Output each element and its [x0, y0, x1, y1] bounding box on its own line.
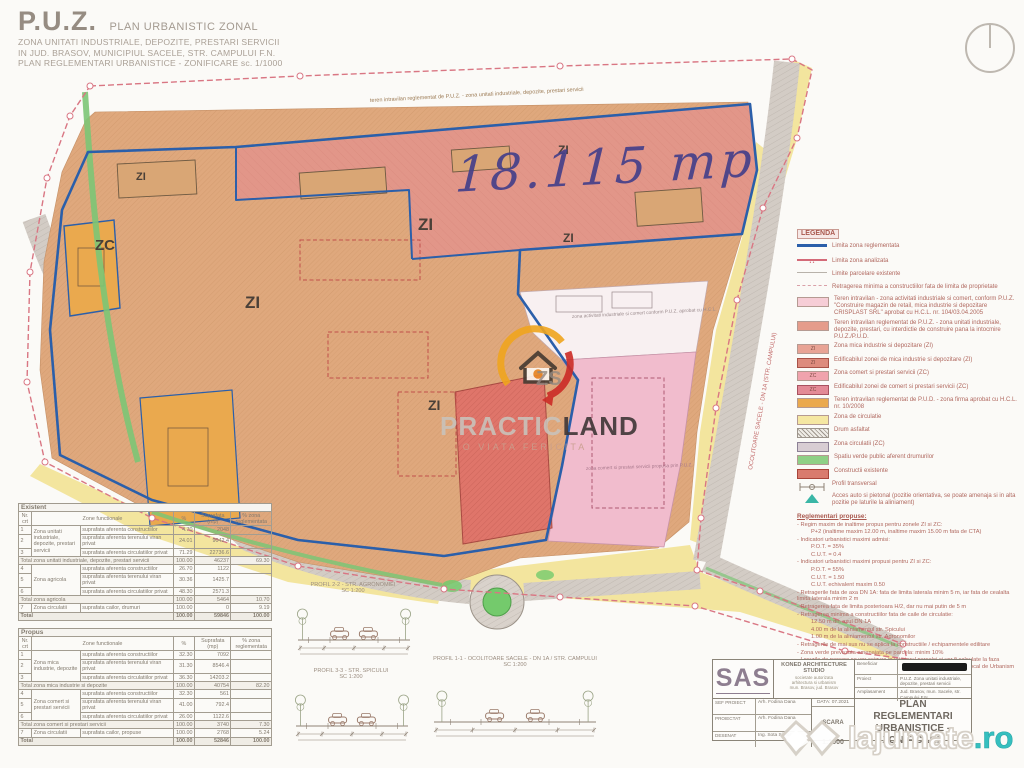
legend-item-label: Spatiu verde public aferent drumurilor — [834, 454, 934, 461]
table-row: 4Zona agricolasuprafata aferenta constru… — [19, 565, 272, 573]
practicland-logo-icon — [492, 322, 588, 410]
boundary-vertex — [698, 515, 704, 521]
table-cell: suprafata aferenta terenului viran priva… — [80, 534, 173, 548]
table-cell: 24.01 — [173, 534, 194, 548]
legend-swatch-swatch: ZC — [797, 371, 829, 381]
legend-item-label: Retragerea minima a constructiilor fata … — [832, 284, 998, 291]
table-cell: 32.30 — [173, 651, 194, 659]
practicland-mark: ZS — [536, 368, 562, 391]
role-label: DESENAT — [713, 732, 756, 747]
table-cell: 2768 — [195, 729, 231, 737]
table-cell — [231, 651, 272, 659]
table-cell: suprafata aferenta terenului viran priva… — [80, 659, 173, 673]
table-cell: 59846 — [195, 612, 231, 620]
legend-swatch-swatch: ZI — [797, 344, 829, 354]
legend-swatch-line-dash — [797, 285, 827, 294]
role-row: SEF PROIECTArh. Fodina Dana — [713, 699, 811, 715]
table-cell: % — [173, 512, 194, 526]
regulation-note: C.U.T. = 1.50 — [797, 575, 1019, 582]
regulation-note: P.O.T. = 55% — [797, 567, 1019, 574]
table-row: Total zona mica industrie si depozite100… — [19, 682, 272, 690]
table-cell — [231, 565, 272, 573]
north-symbol-icon — [962, 18, 1018, 74]
firm-info: KONED ARCHITECTURE STUDIO societate auto… — [774, 660, 855, 698]
legend-item-label: Limite parcelare existente — [832, 271, 900, 278]
table-row: Total zona unitati industriale, depozite… — [19, 557, 272, 565]
legend-item: Profil transversal — [797, 481, 1019, 490]
table-cell: Zone functionale — [32, 512, 174, 526]
table-cell: Zone functionale — [32, 637, 174, 651]
table-cell: Nr. crt — [19, 512, 32, 526]
table-cell: Total zona agricola — [19, 596, 174, 604]
table-cell: suprafata aferenta terenului viran priva… — [80, 573, 173, 587]
table-cell: % — [173, 637, 194, 651]
boundary-vertex — [734, 297, 740, 303]
table-cell: 14203.2 — [195, 674, 231, 682]
legend-title: LEGENDA — [797, 229, 839, 239]
legend-item-label: Zona mica industrie si depozitare (ZI) — [834, 343, 933, 350]
regulation-note: - Indicatori urbanistici maximi propusi … — [797, 559, 1019, 566]
table-cell: 40754 — [195, 682, 231, 690]
zone-label: ZI — [245, 293, 260, 312]
table-row: 4Zona comert si prestari serviciisuprafa… — [19, 690, 272, 698]
legend: LEGENDA Limita zona reglementata• •Limit… — [797, 222, 1019, 678]
table-cell: suprafata aferenta terenului viran priva… — [80, 698, 173, 712]
table-cell: 8546.4 — [195, 659, 231, 673]
regulation-note: 12.50 m din axul DN 1A — [797, 619, 1019, 626]
boundary-vertex — [87, 83, 93, 89]
table-cell: 100.00 — [173, 737, 194, 745]
legend-item: ZCZona comert si prestari servicii (ZC) — [797, 370, 1019, 381]
role-name: Arh. Fodina Dana — [756, 699, 811, 714]
table-cell: 7.30 — [231, 721, 272, 729]
legend-swatch-swatch — [797, 469, 829, 479]
regulation-note: P.O.T. = 35% — [797, 544, 1019, 551]
table-cell: Zona agricola — [32, 565, 81, 596]
legend-swatch-line — [797, 272, 827, 281]
sheet-title: P.U.Z. PLAN URBANISTIC ZONAL ZONA UNITAT… — [18, 6, 378, 69]
regulation-note: - Indicatori urbanistici maximi admisi: — [797, 537, 1019, 544]
regulation-note: 4.00 m de la aliniamentul str. Spicului — [797, 627, 1019, 634]
table-cell: 4 — [19, 565, 32, 573]
regulation-note: - Retragerile fata de axa DN 1A: fata de… — [797, 590, 1019, 603]
zone-label: ZI — [428, 397, 440, 413]
table-cell: 3 — [19, 549, 32, 557]
legend-item: ZCEdificabilul zonei de comert si presta… — [797, 384, 1019, 395]
table-row: 1Zona unitati industriale, depozite, pre… — [19, 526, 272, 534]
table-cell: % zona reglementata — [231, 512, 272, 526]
legend-item: Constructii existente — [797, 468, 1019, 479]
lajumate-watermark: lajumate.ro — [778, 716, 1022, 760]
profile-2-label: PROFIL 2-2 - STR. AGRONOMIEI — [311, 582, 396, 588]
table-cell: 30.36 — [173, 573, 194, 587]
legend-swatch-swatch — [797, 455, 829, 465]
legend-swatch-swatch — [797, 415, 829, 425]
table-cell: suprafata aferenta circulatiilor privat — [80, 549, 173, 557]
legend-item: Teren intravilan reglementat de P.U.Z. -… — [797, 320, 1019, 341]
boundary-vertex — [441, 586, 447, 592]
boundary-vertex — [295, 563, 301, 569]
table-cell: 5464 — [195, 596, 231, 604]
practicland-tagline: O VIATA FERICITA — [440, 442, 610, 452]
table-cell: Zona comert si prestari servicii — [32, 690, 81, 721]
legend-item: Spatiu verde public aferent drumurilor — [797, 454, 1019, 465]
title-type: PLAN URBANISTIC ZONAL — [109, 21, 258, 33]
boundary-vertex — [557, 594, 563, 600]
table-cell: 36.30 — [173, 674, 194, 682]
firm-logo: SAS — [713, 660, 774, 698]
table-cell: 1 — [19, 651, 32, 659]
legend-item: Zona circulatii (ZC) — [797, 441, 1019, 452]
boundary-vertex — [789, 56, 795, 62]
role-label: SEF PROIECT — [713, 699, 756, 714]
legend-item-label: Constructii existente — [834, 468, 888, 475]
table-cell: 2 — [19, 534, 32, 548]
table-cell: 41.00 — [173, 698, 194, 712]
legend-swatch-swatch: ZC — [797, 385, 829, 395]
regulation-note: - Zona verde prevazuta amenajata pe parc… — [797, 650, 1019, 657]
boundary-vertex — [27, 269, 33, 275]
boundary-vertex — [44, 175, 50, 181]
table-cell: 5 — [19, 573, 32, 587]
legend-items: Limita zona reglementata• •Limita zona a… — [797, 243, 1019, 507]
profile-1-drawing — [430, 678, 600, 740]
table-cell: 6 — [19, 713, 32, 721]
table-cell — [231, 534, 272, 548]
legend-swatch-swatch — [797, 398, 829, 408]
table-cell: suprafata aferenta constructiilor — [80, 526, 173, 534]
table-cell: 2571.3 — [195, 588, 231, 596]
boundary-vertex — [694, 567, 700, 573]
legend-item-label: Zona de circulatie — [834, 414, 881, 421]
legend-swatch-line-marked: • • — [797, 259, 827, 269]
table-cell: 4 — [19, 690, 32, 698]
table-cell: Total — [19, 737, 174, 745]
table-cell: 5 — [19, 698, 32, 712]
legend-swatch-swatch — [797, 297, 829, 307]
regulation-note: C.U.T. = 0.4 — [797, 552, 1019, 559]
legend-swatch-hatch — [797, 428, 829, 438]
profile-3-scale: SC 1:200 — [339, 674, 362, 680]
table-cell: 9042.4 — [195, 534, 231, 548]
legend-item: Drum asfaltat — [797, 427, 1019, 438]
table-cell — [231, 526, 272, 534]
role-label: PROIECTAT — [713, 715, 756, 730]
table-row: Total100.0052846100.00 — [19, 737, 272, 745]
table-cell: 561 — [195, 690, 231, 698]
table-cell: 71.29 — [173, 549, 194, 557]
legend-swatch-line — [797, 244, 827, 255]
regulation-note: P+2 (inaltime maxim 12.00 m, inaltime ma… — [797, 529, 1019, 536]
boundary-vertex — [42, 459, 48, 465]
table-title: Existent — [18, 503, 272, 511]
legend-item-label: Teren intravilan - zona activitati indus… — [834, 296, 1019, 317]
title-line-2: IN JUD. BRASOV, MUNICIPIUL SACELE, STR. … — [18, 48, 378, 59]
table-cell — [231, 588, 272, 596]
table-cell — [231, 659, 272, 673]
date-label: DATA: 07.2021 — [812, 700, 854, 707]
table-cell: suprafata cailor, drumuri — [80, 604, 173, 612]
project-row: Proiect P.U.Z. Zona unitati industriale,… — [855, 675, 971, 688]
title-line-3: PLAN REGLEMENTARI URBANISTICE - ZONIFICA… — [18, 58, 378, 69]
table-cell: Total zona mica industrie si depozite — [19, 682, 174, 690]
boundary-vertex — [297, 73, 303, 79]
table-cell: 100.00 — [173, 557, 194, 565]
practicland-watermark: ZS PRACTICLAND O VIATA FERICITA — [440, 322, 610, 452]
table-cell: 0 — [195, 604, 231, 612]
regulation-note: - Retragerile de mai sus nu se aplica la… — [797, 642, 1019, 649]
svg-text:teren intravilan reglementat d: teren intravilan reglementat de P.U.Z. -… — [370, 87, 584, 104]
table-cell: suprafata cailor, propuse — [80, 729, 173, 737]
boundary-vertex — [557, 63, 563, 69]
table-title: Propus — [18, 628, 272, 636]
boundary-vertex — [24, 379, 30, 385]
table-cell: 32.30 — [173, 690, 194, 698]
table-row: Total zona comert si prestari servicii10… — [19, 721, 272, 729]
land-balance-table: Nr. crtZone functionale%Suprafata (mp)% … — [18, 636, 272, 746]
profile-2-drawing — [294, 598, 414, 658]
legend-item-label: Limita zona analizata — [832, 258, 888, 265]
table-cell: 5.24 — [231, 729, 272, 737]
legend-item: Limite parcelare existente — [797, 271, 1019, 281]
boundary-vertex — [692, 603, 698, 609]
table-cell: suprafata aferenta constructiilor — [80, 690, 173, 698]
table-cell: 10.70 — [231, 596, 272, 604]
practicland-brand: PRACTICLAND — [440, 411, 610, 442]
legend-item: • •Limita zona analizata — [797, 258, 1019, 269]
table-cell: 1122.6 — [195, 713, 231, 721]
table-cell: 100.00 — [173, 604, 194, 612]
table-cell: Suprafata (mp) — [195, 637, 231, 651]
legend-item-label: Teren intravilan reglementat de P.U.D. -… — [834, 397, 1019, 411]
table-cell: 2048 — [195, 526, 231, 534]
legend-item-label: Limita zona reglementata — [832, 243, 899, 250]
zone-label: ZI — [563, 231, 574, 245]
table-cell: Zona circulatii — [32, 604, 81, 612]
legend-swatch-swatch — [797, 321, 829, 331]
table-cell: 100.00 — [231, 612, 272, 620]
legend-swatch-swatch — [797, 442, 829, 452]
table-cell: Zona circulatii — [32, 729, 81, 737]
beneficiary-row: Beneficiar — [855, 660, 971, 675]
table-cell: suprafata aferenta constructiilor — [80, 651, 173, 659]
legend-item: Limita zona reglementata — [797, 243, 1019, 255]
table-cell: 52846 — [195, 737, 231, 745]
plan-sheet: teren intravilan reglementat de P.U.Z. -… — [0, 0, 1024, 768]
table-cell: 100.00 — [231, 737, 272, 745]
legend-item: Acces auto si pietonal (pozitie orientat… — [797, 493, 1019, 507]
table-cell: 9.19 — [231, 604, 272, 612]
table-cell: 100.00 — [173, 721, 194, 729]
redacted-beneficiary — [902, 663, 967, 671]
table-cell: Suprafata (mp) — [195, 512, 231, 526]
legend-swatch-access — [797, 494, 827, 502]
table-row: 7Zona circulatiisuprafata cailor, propus… — [19, 729, 272, 737]
table-row: Total100.0059846100.00 — [19, 612, 272, 620]
table-propus: PropusNr. crtZone functionale%Suprafata … — [18, 628, 272, 746]
profile-1-scale: SC 1:200 — [503, 662, 526, 668]
lajumate-wordmark: lajumate.ro — [848, 720, 1013, 756]
table-cell: 1 — [19, 526, 32, 534]
table-cell: 1425.7 — [195, 573, 231, 587]
firm-sub-3: mun. Brasov, jud. Brasov — [774, 685, 854, 690]
table-cell: 100.00 — [173, 612, 194, 620]
table-cell: 6 — [19, 588, 32, 596]
table-cell: suprafata aferenta circulatiilor privat — [80, 713, 173, 721]
table-cell — [231, 690, 272, 698]
title-line-1: ZONA UNITATI INDUSTRIALE, DEPOZITE, PRES… — [18, 37, 378, 48]
land-balance-table: Nr. crtZone functionale%Suprafata (mp)% … — [18, 511, 272, 621]
legend-item-label: Acces auto si pietonal (pozitie orientat… — [832, 493, 1019, 507]
legend-item-label: Zona circulatii (ZC) — [834, 441, 885, 448]
table-cell: 7092 — [195, 651, 231, 659]
table-cell — [231, 573, 272, 587]
legend-swatch-swatch: ZI — [797, 358, 829, 368]
table-cell: Total — [19, 612, 174, 620]
legend-item-label: Edificabilul zonei de mica industrie si … — [834, 357, 972, 364]
table-cell: 82.20 — [231, 682, 272, 690]
legend-swatch-profile — [797, 482, 827, 490]
legend-item: Teren intravilan - zona activitati indus… — [797, 296, 1019, 317]
table-cell: 31.30 — [173, 659, 194, 673]
profile-3-drawing — [292, 684, 412, 744]
notes-title: Reglementari propuse: — [797, 513, 1019, 520]
table-cell: 4.70 — [173, 526, 194, 534]
boundary-vertex — [67, 113, 73, 119]
profile-3-label: PROFIL 3-3 - STR. SPICULUI — [314, 668, 389, 674]
table-row: 1Zona mica industrie, depozitesuprafata … — [19, 651, 272, 659]
table-row: Total zona agricola100.00546410.70 — [19, 596, 272, 604]
boundary-vertex — [713, 405, 719, 411]
table-cell: Nr. crt — [19, 637, 32, 651]
title-main: P.U.Z. — [18, 6, 97, 36]
table-cell: 1122 — [195, 565, 231, 573]
table-cell: 2 — [19, 659, 32, 673]
table-cell: Total zona unitati industriale, depozite… — [19, 557, 174, 565]
table-row: 7Zona circulatiisuprafata cailor, drumur… — [19, 604, 272, 612]
profile-1-label: PROFIL 1-1 - OCOLITOARE SACELE - DN 1A /… — [433, 656, 597, 662]
zone-label: ZI — [136, 171, 146, 183]
table-cell — [231, 698, 272, 712]
boundary-vertex — [757, 588, 763, 594]
table-cell: 3 — [19, 674, 32, 682]
table-cell: 46237 — [195, 557, 231, 565]
table-cell: 100.00 — [173, 682, 194, 690]
zone-label: ZC — [95, 237, 115, 254]
regulation-note: - Retragerea minima a constructiilor fat… — [797, 612, 1019, 619]
boundary-vertex — [760, 205, 766, 211]
legend-item: Zona de circulatie — [797, 414, 1019, 425]
table-cell: suprafata aferenta circulatiilor privat — [80, 674, 173, 682]
table-cell: 7 — [19, 729, 32, 737]
table-cell: Zona unitati industriale, depozite, pres… — [32, 526, 81, 557]
table-cell — [231, 549, 272, 557]
table-cell — [231, 713, 272, 721]
legend-item-label: Profil transversal — [832, 481, 877, 488]
legend-item-label: Drum asfaltat — [834, 427, 870, 434]
legend-item-label: Edificabilul zonei de comert si prestari… — [834, 384, 968, 391]
table-cell: Total zona comert si prestari servicii — [19, 721, 174, 729]
legend-notes: Reglementari propuse: - Regim maxim de i… — [797, 513, 1019, 677]
table-cell: % zona reglementata — [231, 637, 272, 651]
profile-2-scale: SC 1:200 — [341, 588, 364, 594]
zone-label: ZI — [418, 215, 433, 234]
table-cell: 100.00 — [173, 596, 194, 604]
legend-item: Retragerea minima a constructiilor fata … — [797, 284, 1019, 294]
legend-item-label: Teren intravilan reglementat de P.U.Z. -… — [834, 320, 1019, 341]
table-cell: suprafata aferenta circulatiilor privat — [80, 588, 173, 596]
table-cell: 3740 — [195, 721, 231, 729]
regulation-note: 1.00 m de la aliniamentul str. Agronomil… — [797, 634, 1019, 641]
regulation-note: C.U.T. echivalent maxim 0.50 — [797, 582, 1019, 589]
firm-name: KONED ARCHITECTURE STUDIO — [774, 662, 854, 675]
legend-item-label: Zona comert si prestari servicii (ZC) — [834, 370, 929, 377]
table-cell: 69.30 — [231, 557, 272, 565]
notes-list: - Regim maxim de inaltime propus pentru … — [797, 522, 1019, 677]
table-cell: 792.4 — [195, 698, 231, 712]
legend-item: Teren intravilan reglementat de P.U.D. -… — [797, 397, 1019, 411]
regulation-note: - Regim maxim de inaltime propus pentru … — [797, 522, 1019, 529]
table-cell: suprafata aferenta constructiilor — [80, 565, 173, 573]
table-cell: 22736.6 — [195, 549, 231, 557]
table-cell — [231, 674, 272, 682]
table-cell: 7 — [19, 604, 32, 612]
table-cell: 48.30 — [173, 588, 194, 596]
lajumate-logo-icon — [778, 716, 844, 760]
table-cell: 26.00 — [173, 713, 194, 721]
regulation-note: - Retragerea fata de limita posterioara … — [797, 604, 1019, 611]
table-cell: Zona mica industrie, depozite — [32, 651, 81, 682]
table-cell: 100.00 — [173, 729, 194, 737]
legend-item: ZIEdificabilul zonei de mica industrie s… — [797, 357, 1019, 368]
legend-item: ZIZona mica industrie si depozitare (ZI) — [797, 343, 1019, 354]
table-cell: 26.70 — [173, 565, 194, 573]
table-existent: ExistentNr. crtZone functionale%Suprafat… — [18, 503, 272, 621]
boundary-vertex — [794, 135, 800, 141]
